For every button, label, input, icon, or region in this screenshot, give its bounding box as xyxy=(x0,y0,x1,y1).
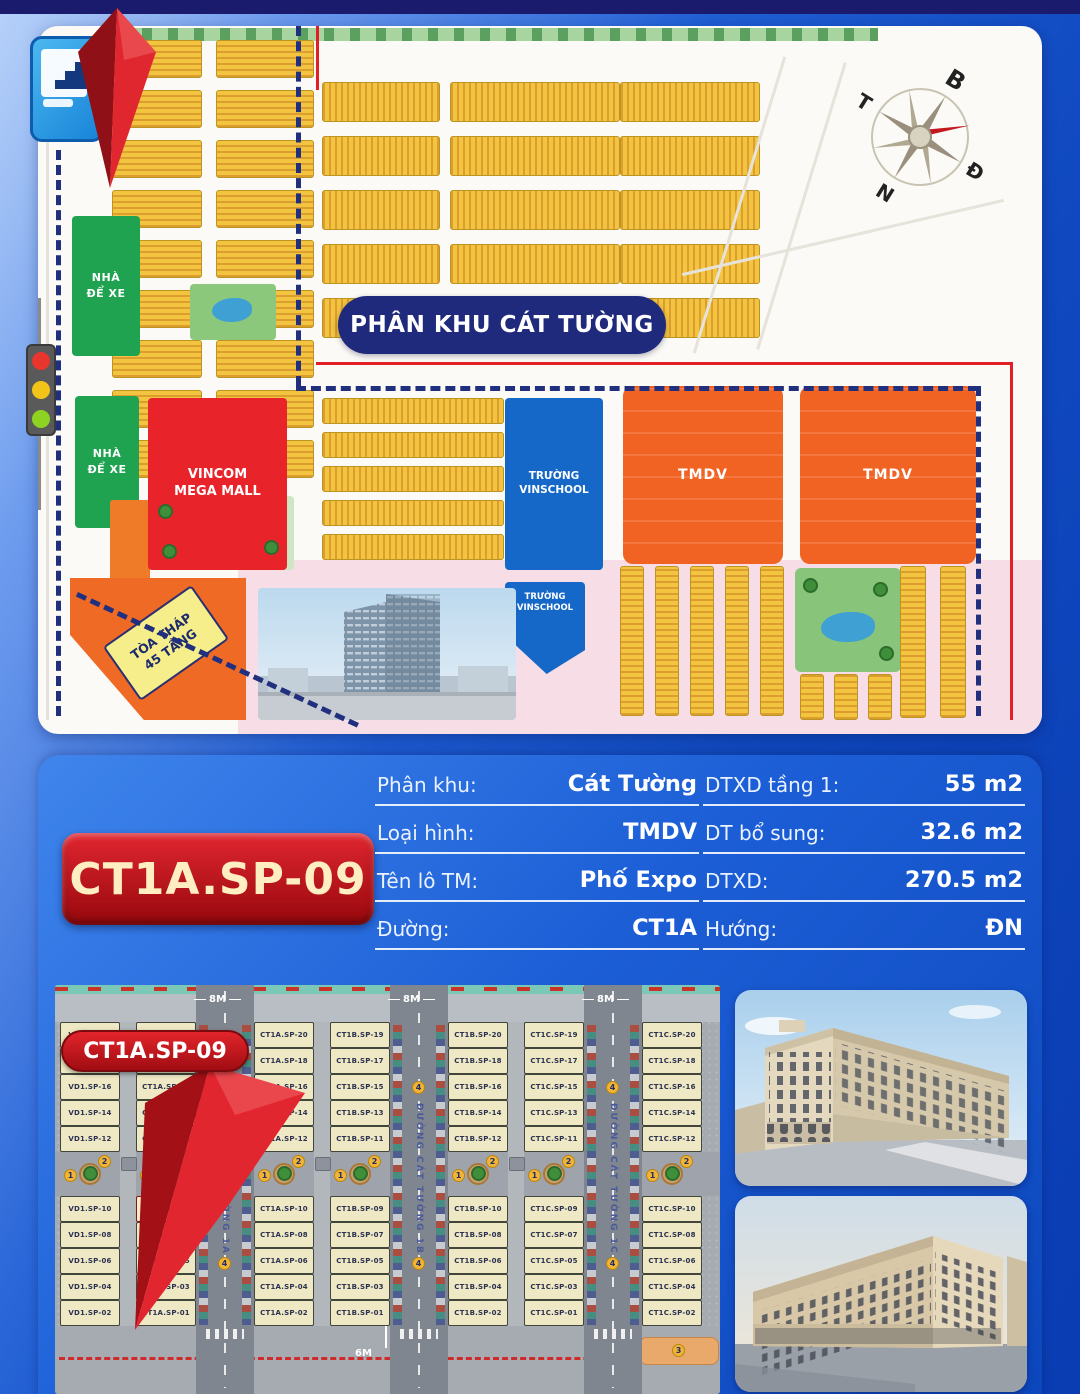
lot-cell: CT1C.SP-19 xyxy=(524,1022,584,1048)
lot-cell-label: CT1C.SP-02 xyxy=(648,1309,695,1317)
lot-cell-label: CT1C.SP-05 xyxy=(530,1257,577,1265)
lot-cell: CT1B.SP-04 xyxy=(448,1274,508,1300)
pair-marker: 1 xyxy=(64,1169,77,1182)
lot-cell: CT1B.SP-09 xyxy=(330,1196,390,1222)
housing-row xyxy=(620,136,760,176)
siteplan-locator-arrow xyxy=(115,1063,315,1343)
lot-cell: VD1.SP-08 xyxy=(60,1222,120,1248)
lot-cell: VD1.SP-04 xyxy=(60,1274,120,1300)
housing-strip xyxy=(690,566,714,716)
tick-line xyxy=(229,999,241,1000)
lot-cell: CT1B.SP-17 xyxy=(330,1048,390,1074)
siteplan-orange-strip: 3 xyxy=(639,1337,719,1365)
boundary-navy-dashed-right xyxy=(976,386,981,716)
lot-cell: CT1B.SP-20 xyxy=(448,1022,508,1048)
street-marker-label: 4 xyxy=(610,1259,616,1268)
traffic-light-yellow xyxy=(32,381,50,399)
lot-cell-label: CT1C.SP-11 xyxy=(530,1135,577,1143)
masterplan-tmdv-2: TMDV xyxy=(800,386,976,564)
field-label: Loại hình: xyxy=(377,821,475,845)
housing-row xyxy=(322,500,504,526)
info-fields-left: Phân khu: Cát Tường Loại hình: TMDV Tên … xyxy=(375,771,699,963)
lot-cell: CT1B.SP-19 xyxy=(330,1022,390,1048)
lot-cell-label: CT1C.SP-14 xyxy=(648,1109,695,1117)
masterplan-housing-strips-2 xyxy=(800,674,892,722)
housing-strip xyxy=(900,566,926,718)
lot-cell-label: VD1.SP-10 xyxy=(68,1205,111,1213)
housing-row xyxy=(450,244,620,284)
lot-cell-label: CT1C.SP-10 xyxy=(648,1205,695,1213)
tick-line xyxy=(582,999,594,1000)
tmdv-1-label: TMDV xyxy=(678,467,728,483)
boundary-navy-dashed-mid xyxy=(296,26,301,386)
lot-cell-label: VD1.SP-02 xyxy=(68,1309,111,1317)
lot-cell: CT1B.SP-08 xyxy=(448,1222,508,1248)
lot-cell-label: VD1.SP-12 xyxy=(68,1135,111,1143)
lot-cell-label: CT1C.SP-13 xyxy=(530,1109,577,1117)
pair-marker-label: 1 xyxy=(68,1171,74,1180)
housing-row xyxy=(450,136,620,176)
field-label: Phân khu: xyxy=(377,773,477,797)
tree-icon xyxy=(162,544,177,559)
subzone-banner: PHÂN KHU CÁT TƯỜNG xyxy=(338,296,666,354)
lot-cell: CT1B.SP-13 xyxy=(330,1100,390,1126)
field-value: 55 m2 xyxy=(945,771,1023,797)
housing-row xyxy=(450,190,620,230)
lot-cell: CT1B.SP-03 xyxy=(330,1274,390,1300)
pair-marker-label: 1 xyxy=(338,1171,344,1180)
bench-icon xyxy=(315,1157,331,1171)
lot-cell-label: CT1B.SP-12 xyxy=(454,1135,501,1143)
masterplan-map: NHÀ ĐỂ XE NHÀ ĐỂ XE VINCOM MEGA MALL TRƯ… xyxy=(38,26,1042,734)
bench-icon xyxy=(509,1157,525,1171)
field-label: Hướng: xyxy=(705,917,777,941)
parked-cars-strip xyxy=(587,1025,596,1325)
field-row: Loại hình: TMDV xyxy=(375,819,699,854)
tree-icon xyxy=(879,646,894,661)
lot-cell-label: CT1B.SP-08 xyxy=(454,1231,501,1239)
crosswalk xyxy=(594,1329,632,1339)
street-marker: 4 xyxy=(606,1081,619,1094)
lot-cell-label: VD1.SP-06 xyxy=(68,1257,111,1265)
lot-cell-label: CT1B.SP-15 xyxy=(336,1083,383,1091)
housing-row xyxy=(322,534,504,560)
masterplan-housing-rows-mid xyxy=(322,398,504,566)
pool-icon xyxy=(212,298,252,322)
housing-strip xyxy=(940,566,966,718)
lot-cell: CT1C.SP-18 xyxy=(642,1048,702,1074)
street-name-label-label: ĐƯỜNG CÁT TƯỜNG 1C xyxy=(608,1103,618,1255)
pair-marker-label: 2 xyxy=(372,1157,378,1166)
lot-cell: VD1.SP-02 xyxy=(60,1300,120,1326)
lot-cell-label: CT1B.SP-20 xyxy=(454,1031,501,1039)
field-value: CT1A xyxy=(632,915,697,941)
masterplan-housing-strips-1 xyxy=(620,566,792,720)
road-width-top-label: 8M xyxy=(388,991,435,1007)
road-width-tick xyxy=(385,1326,387,1348)
housing-strip xyxy=(655,566,679,716)
lot-cell: CT1C.SP-17 xyxy=(524,1048,584,1074)
lot-cell-label: VD1.SP-08 xyxy=(68,1231,111,1239)
field-value: 32.6 m2 xyxy=(921,819,1023,845)
housing-strip xyxy=(800,674,824,720)
lot-cell-label: CT1C.SP-07 xyxy=(530,1231,577,1239)
lot-cell-label: CT1B.SP-10 xyxy=(454,1205,501,1213)
pair-marker: 2 xyxy=(98,1155,111,1168)
lot-cell-label: VD1.SP-14 xyxy=(68,1109,111,1117)
compass-south-label: N xyxy=(872,178,899,207)
building-render-photo-1 xyxy=(735,990,1027,1186)
strip-marker-label: 3 xyxy=(676,1346,682,1355)
lot-cell: CT1B.SP-12 xyxy=(448,1126,508,1152)
lot-cell: CT1C.SP-02 xyxy=(642,1300,702,1326)
lot-cell: CT1C.SP-10 xyxy=(642,1196,702,1222)
subzone-banner-label: PHÂN KHU CÁT TƯỜNG xyxy=(350,312,654,338)
parked-cars-strip xyxy=(630,1025,639,1325)
field-label: Đường: xyxy=(377,917,450,941)
tree-icon xyxy=(264,540,279,555)
housing-strip xyxy=(834,674,858,720)
pair-marker-label: 1 xyxy=(532,1171,538,1180)
pair-marker: 1 xyxy=(334,1169,347,1182)
housing-row xyxy=(620,82,760,122)
lot-cell-label: CT1C.SP-04 xyxy=(648,1283,695,1291)
tick-line xyxy=(423,999,435,1000)
compass-rose: B Đ N T xyxy=(845,60,995,214)
field-label: Tên lô TM: xyxy=(377,869,478,893)
lot-cell-label: CT1C.SP-01 xyxy=(530,1309,577,1317)
lot-code-badge: CT1A.SP-09 xyxy=(62,833,374,925)
siteplan-map: 3 6M ĐƯỜNG CÁT TƯỜNG 1A8M44ĐƯỜNG CÁT TƯỜ… xyxy=(55,985,720,1394)
housing-strip xyxy=(868,674,892,720)
field-row: Phân khu: Cát Tường xyxy=(375,771,699,806)
street-marker-label: 4 xyxy=(610,1083,616,1092)
traffic-light-pole xyxy=(38,298,41,346)
lot-cell-label: CT1C.SP-12 xyxy=(648,1135,695,1143)
masterplan-central-park xyxy=(795,568,901,672)
lot-cell-label: CT1B.SP-09 xyxy=(336,1205,383,1213)
road-width-bottom-label: 6M xyxy=(355,1348,372,1359)
pair-marker: 1 xyxy=(528,1169,541,1182)
lot-cell: CT1C.SP-12 xyxy=(642,1126,702,1152)
lot-cell-label: CT1B.SP-14 xyxy=(454,1109,501,1117)
lot-cell: CT1B.SP-07 xyxy=(330,1222,390,1248)
lot-cell-label: CT1C.SP-16 xyxy=(648,1083,695,1091)
top-navy-band xyxy=(0,0,1080,14)
lot-cell: CT1C.SP-16 xyxy=(642,1074,702,1100)
lot-cell-label: CT1A.SP-20 xyxy=(260,1031,308,1039)
lot-cell: VD1.SP-06 xyxy=(60,1248,120,1274)
lot-cell-label: CT1B.SP-19 xyxy=(336,1031,383,1039)
lot-cell-label: CT1B.SP-13 xyxy=(336,1109,383,1117)
lot-cell: CT1B.SP-10 xyxy=(448,1196,508,1222)
strip-marker: 3 xyxy=(672,1344,685,1357)
compass-east-label: Đ xyxy=(962,157,989,186)
tree-icon xyxy=(803,578,818,593)
traffic-light-pole xyxy=(38,434,41,510)
field-value: Cát Tường xyxy=(568,771,697,797)
field-row: DTXD tầng 1: 55 m2 xyxy=(703,771,1025,806)
street-marker: 4 xyxy=(412,1081,425,1094)
building-render-2-illustration xyxy=(735,1196,1027,1392)
housing-row xyxy=(322,136,440,176)
compass-west-label: T xyxy=(852,88,877,116)
lot-cell-label: CT1C.SP-09 xyxy=(530,1205,577,1213)
lot-cell: CT1C.SP-04 xyxy=(642,1274,702,1300)
tick-line xyxy=(617,999,629,1000)
field-label: DT bổ sung: xyxy=(705,821,825,845)
lot-cell: CT1C.SP-14 xyxy=(642,1100,702,1126)
pair-marker-label: 1 xyxy=(650,1171,656,1180)
lot-cell-label: CT1C.SP-18 xyxy=(648,1057,695,1065)
lot-cell-label: CT1B.SP-11 xyxy=(336,1135,383,1143)
lot-cell-label: CT1B.SP-07 xyxy=(336,1231,383,1239)
field-row: Hướng: ĐN xyxy=(703,915,1025,950)
housing-row xyxy=(450,82,620,122)
masterplan-vinschool-1: TRƯỜNG VINSCHOOL xyxy=(505,398,603,570)
street-name-label: ĐƯỜNG CÁT TƯỜNG 1B xyxy=(414,1103,424,1255)
masterplan-courtyard-park xyxy=(190,284,276,340)
lot-cell-label: CT1B.SP-02 xyxy=(454,1309,501,1317)
field-value: ĐN xyxy=(985,915,1023,941)
lot-cell: CT1B.SP-11 xyxy=(330,1126,390,1152)
lot-cell: CT1C.SP-09 xyxy=(524,1196,584,1222)
lot-cell: VD1.SP-16 xyxy=(60,1074,120,1100)
pair-marker: 1 xyxy=(452,1169,465,1182)
field-label: DTXD: xyxy=(705,869,768,893)
parked-cars-strip xyxy=(393,1025,402,1325)
field-label: DTXD tầng 1: xyxy=(705,773,839,797)
traffic-light-red xyxy=(32,352,50,370)
parked-cars-strip xyxy=(436,1025,445,1325)
lot-cell: CT1A.SP-20 xyxy=(254,1022,314,1048)
field-row: DT bổ sung: 32.6 m2 xyxy=(703,819,1025,854)
field-row: Tên lô TM: Phố Expo xyxy=(375,867,699,902)
lot-cell-label: VD1.SP-04 xyxy=(68,1283,111,1291)
vincom-label: VINCOM MEGA MALL xyxy=(168,467,268,501)
housing-row xyxy=(620,244,760,284)
lot-cell: VD1.SP-10 xyxy=(60,1196,120,1222)
lot-cell-label: CT1B.SP-01 xyxy=(336,1309,383,1317)
lot-cell-label: CT1C.SP-08 xyxy=(648,1231,695,1239)
siteplan-lot-badge: CT1A.SP-09 xyxy=(61,1030,249,1072)
tree-icon xyxy=(665,1166,680,1181)
tree-icon xyxy=(158,504,173,519)
housing-row xyxy=(322,466,504,492)
crosswalk xyxy=(400,1329,438,1339)
tree-icon xyxy=(471,1166,486,1181)
vinschool-1-label: TRƯỜNG VINSCHOOL xyxy=(516,470,592,497)
street-marker-label: 4 xyxy=(416,1083,422,1092)
pair-marker: 2 xyxy=(680,1155,693,1168)
lot-cell: VD1.SP-12 xyxy=(60,1126,120,1152)
field-row: DTXD: 270.5 m2 xyxy=(703,867,1025,902)
info-fields-right: DTXD tầng 1: 55 m2 DT bổ sung: 32.6 m2 D… xyxy=(703,771,1025,963)
lot-cell: VD1.SP-14 xyxy=(60,1100,120,1126)
masterplan-locator-arrow xyxy=(70,0,160,195)
housing-row xyxy=(322,432,504,458)
traffic-light-green xyxy=(32,410,50,428)
road-width-value: 8M xyxy=(597,994,614,1005)
lot-cell-label: CT1B.SP-03 xyxy=(336,1283,383,1291)
housing-row xyxy=(322,398,504,424)
road-width-value: 8M xyxy=(403,994,420,1005)
lot-cell-label: CT1B.SP-18 xyxy=(454,1057,501,1065)
lot-cell-label: VD1.SP-16 xyxy=(68,1083,111,1091)
lot-cell: CT1C.SP-11 xyxy=(524,1126,584,1152)
road-width-value: 8M xyxy=(209,994,226,1005)
housing-row xyxy=(322,244,440,284)
road-width-top-label: 8M xyxy=(582,991,629,1007)
lot-cell: CT1B.SP-18 xyxy=(448,1048,508,1074)
tree-icon xyxy=(353,1166,368,1181)
pair-marker: 2 xyxy=(486,1155,499,1168)
lot-cell-label: CT1C.SP-17 xyxy=(530,1057,577,1065)
lot-cell: CT1B.SP-15 xyxy=(330,1074,390,1100)
pair-marker: 2 xyxy=(562,1155,575,1168)
street-name-label-label: ĐƯỜNG CÁT TƯỜNG 1B xyxy=(414,1103,424,1255)
masterplan-orange-block xyxy=(110,500,150,586)
field-row: Đường: CT1A xyxy=(375,915,699,950)
boundary-navy-dashed-top xyxy=(296,386,978,391)
masterplan-tmdv-1: TMDV xyxy=(623,386,783,564)
lot-cell-label: CT1C.SP-03 xyxy=(530,1283,577,1291)
lot-cell: CT1B.SP-14 xyxy=(448,1100,508,1126)
lot-cell: CT1C.SP-20 xyxy=(642,1022,702,1048)
lot-cell: CT1C.SP-08 xyxy=(642,1222,702,1248)
lot-cell-label: CT1B.SP-05 xyxy=(336,1257,383,1265)
lot-cell: CT1B.SP-05 xyxy=(330,1248,390,1274)
tick-line xyxy=(194,999,206,1000)
street-marker: 4 xyxy=(412,1257,425,1270)
housing-row xyxy=(322,190,440,230)
lot-cell-label: CT1C.SP-19 xyxy=(530,1031,577,1039)
boundary-red-right xyxy=(1010,362,1013,720)
lot-cell-label: CT1B.SP-04 xyxy=(454,1283,501,1291)
lot-cell: CT1C.SP-13 xyxy=(524,1100,584,1126)
pair-marker-label: 2 xyxy=(102,1157,108,1166)
lot-cell: CT1B.SP-06 xyxy=(448,1248,508,1274)
lot-cell-label: CT1C.SP-15 xyxy=(530,1083,577,1091)
vinschool-2-label: TRƯỜNG VINSCHOOL xyxy=(513,592,577,614)
lot-cell: CT1C.SP-06 xyxy=(642,1248,702,1274)
lot-cell: CT1C.SP-07 xyxy=(524,1222,584,1248)
block-alley xyxy=(508,1022,524,1326)
lot-info-panel: CT1A.SP-09 Phân khu: Cát Tường Loại hình… xyxy=(38,755,1042,1394)
field-value: TMDV xyxy=(623,819,697,845)
tower-photo xyxy=(258,588,516,720)
street-marker: 4 xyxy=(606,1257,619,1270)
street-name-label: ĐƯỜNG CÁT TƯỜNG 1C xyxy=(608,1103,618,1255)
lot-cell: CT1C.SP-03 xyxy=(524,1274,584,1300)
housing-strip xyxy=(620,566,644,716)
lot-cell: CT1B.SP-02 xyxy=(448,1300,508,1326)
field-value: 270.5 m2 xyxy=(905,867,1023,893)
tmdv-2-label: TMDV xyxy=(863,467,913,483)
road-width-top-label: 8M xyxy=(194,991,241,1007)
housing-strip xyxy=(725,566,749,716)
lot-cell: CT1C.SP-05 xyxy=(524,1248,584,1274)
pair-marker-label: 2 xyxy=(566,1157,572,1166)
boundary-red-top xyxy=(316,26,319,90)
lot-cell: CT1C.SP-01 xyxy=(524,1300,584,1326)
tree-icon xyxy=(83,1166,98,1181)
tower-photo-illustration xyxy=(258,588,516,720)
tick-line xyxy=(388,999,400,1000)
field-value: Phố Expo xyxy=(580,867,697,893)
siteplan-lot-badge-label: CT1A.SP-09 xyxy=(83,1039,227,1064)
pair-marker: 1 xyxy=(646,1169,659,1182)
lot-cell: CT1C.SP-15 xyxy=(524,1074,584,1100)
lot-cell-label: CT1C.SP-20 xyxy=(648,1031,695,1039)
tree-icon xyxy=(873,582,888,597)
boundary-red-horizontal xyxy=(316,362,1012,365)
park-pool-icon xyxy=(821,612,875,642)
street-marker-label: 4 xyxy=(416,1259,422,1268)
lot-cell-label: CT1B.SP-16 xyxy=(454,1083,501,1091)
boundary-navy-dashed-left xyxy=(56,150,61,716)
pair-marker-label: 1 xyxy=(456,1171,462,1180)
tree-icon xyxy=(547,1166,562,1181)
block-alley xyxy=(314,1022,330,1326)
lot-code-label: CT1A.SP-09 xyxy=(69,854,366,905)
flyer-page: NHÀ ĐỂ XE NHÀ ĐỂ XE VINCOM MEGA MALL TRƯ… xyxy=(0,0,1080,1394)
masterplan-housing-strips-3 xyxy=(900,566,970,720)
traffic-light-icon xyxy=(26,344,56,436)
masterplan-parking-1: NHÀ ĐỂ XE xyxy=(72,216,140,356)
pair-marker: 2 xyxy=(368,1155,381,1168)
lot-cell: CT1B.SP-16 xyxy=(448,1074,508,1100)
parking-2-label: NHÀ ĐỂ XE xyxy=(86,446,128,478)
building-render-1-illustration xyxy=(735,990,1027,1186)
lot-cell-label: CT1B.SP-06 xyxy=(454,1257,501,1265)
lot-cell-label: CT1B.SP-17 xyxy=(336,1057,383,1065)
building-render-photo-2 xyxy=(735,1196,1027,1392)
housing-row xyxy=(322,82,440,122)
compass-north-label: B xyxy=(940,63,970,96)
lot-cell-label: CT1C.SP-06 xyxy=(648,1257,695,1265)
pair-marker-label: 2 xyxy=(490,1157,496,1166)
housing-strip xyxy=(760,566,784,716)
lot-cell: CT1B.SP-01 xyxy=(330,1300,390,1326)
pair-marker-label: 2 xyxy=(684,1157,690,1166)
parking-1-label: NHÀ ĐỂ XE xyxy=(85,270,127,302)
